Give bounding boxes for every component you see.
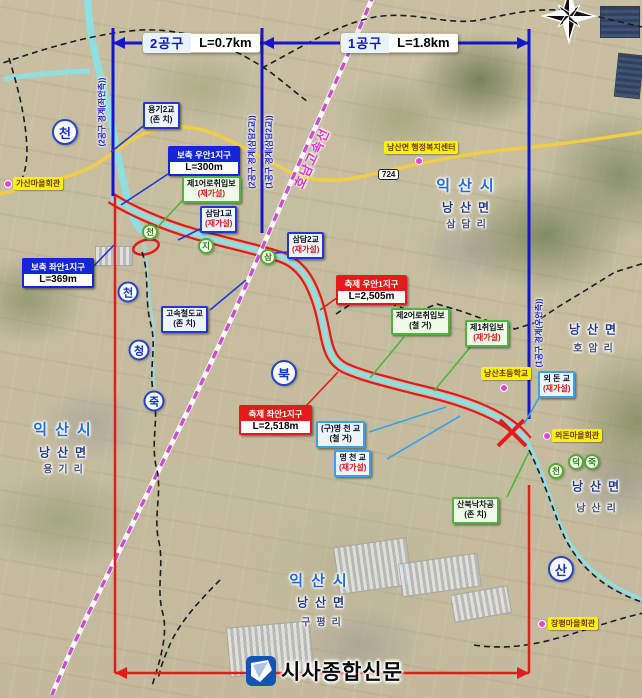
- structure-label-fishway1-weir: 제1어로취입보 (재가설): [182, 176, 241, 203]
- zone-title: 축제 좌안1지구: [241, 407, 310, 421]
- structure-note: (존 치): [457, 510, 494, 520]
- poi-label-gasan-hall: 가산마을회관: [13, 177, 63, 190]
- structure-note: (철 거): [396, 321, 445, 331]
- stream-marker-san: 산: [548, 556, 574, 582]
- poi-marker-dot: [415, 157, 423, 165]
- arrowhead-icon: [115, 667, 127, 679]
- boundary-dash: [529, 450, 642, 604]
- poi-label-oedon-hall: 외돈마을회관: [552, 429, 602, 442]
- stream-marker-g-sam: 삼: [260, 249, 276, 265]
- arrowhead-icon: [113, 37, 125, 49]
- poi-label-jangpyeong-hall: 장평마을회관: [548, 617, 598, 630]
- region-district-nangsan: 낭산면: [572, 478, 626, 495]
- project-location-map: 2공구L=0.7km 1공구L=1.8km (2공구 경계(좌안측)) (2공구…: [0, 0, 642, 698]
- zone-label-chukje-left: 축제 좌안1지구 L=2,518m: [239, 405, 312, 435]
- structure-label-oedon-bridge: 외 돈 교 (재가설): [538, 371, 575, 398]
- newspaper-logo: 시사종합신문: [246, 656, 403, 686]
- stream-marker-g-deok: 덕: [568, 454, 584, 470]
- structure-label-yonggi2-bridge: 용기2교 (존 치): [143, 102, 180, 129]
- region-city-samdam: 익산시: [436, 175, 501, 196]
- road-number-badge: 724: [378, 169, 399, 180]
- structure-note: (철 거): [321, 434, 360, 444]
- region-village-hoam: 호암리: [573, 340, 619, 355]
- structure-name: 명 천 교: [339, 453, 366, 463]
- structure-note: (재가설): [470, 333, 504, 343]
- section2-dimension-label: 2공구L=0.7km: [143, 33, 260, 53]
- leader-line: [434, 345, 472, 391]
- structure-label-samdam1-bridge: 삼담1교 (재가설): [200, 206, 237, 233]
- section1-length: L=1.8km: [389, 34, 457, 52]
- newspaper-logo-icon: [246, 656, 276, 686]
- section1-dimension-label: 1공구L=1.8km: [341, 33, 458, 53]
- leader-line: [370, 337, 404, 378]
- leader-line: [92, 245, 114, 268]
- poi-marker-dot: [543, 432, 551, 440]
- structure-label-sanbuk-drop: 산북낙차공 (존 치): [452, 497, 499, 524]
- poi-label-nangsan-school: 낭산초등학교: [481, 367, 531, 380]
- region-city-yonggi: 익산시: [33, 419, 98, 440]
- leader-line: [524, 396, 540, 424]
- stream-marker-cheong: 청: [129, 340, 150, 361]
- zone-title: 축제 우안1지구: [338, 277, 405, 291]
- structure-label-samdam2-bridge: 삼담2교 (재가설): [287, 232, 324, 259]
- stream-marker-juk: 죽: [144, 391, 165, 412]
- poi-marker-dot: [4, 180, 12, 188]
- structure-note: (재가설): [543, 384, 570, 394]
- structure-name: 고속철도교: [166, 309, 203, 319]
- structure-name: 제1취입보: [470, 323, 504, 333]
- stream-marker-buk: 북: [271, 360, 297, 386]
- region-district-yonggi: 낭산면: [39, 444, 93, 461]
- section2-length: L=0.7km: [191, 34, 259, 52]
- poi-label-nangsan-center: 낭산면 행정복지센터: [384, 141, 458, 154]
- zone-length: L=300m: [170, 162, 238, 174]
- structure-note: (존 치): [148, 115, 175, 125]
- leader-line: [306, 372, 338, 406]
- zone-label-bochuk-left: 보축 좌안1지구 L=369m: [22, 258, 94, 288]
- structure-note: (존 치): [166, 319, 203, 329]
- boundary-dash: [158, 580, 220, 680]
- region-district-hoam: 낭산면: [569, 321, 623, 338]
- arrowhead-icon: [517, 37, 529, 49]
- poi-marker-dot: [500, 384, 508, 392]
- region-city-gupyeong: 익산시: [289, 570, 354, 591]
- structure-note: (재가설): [292, 245, 319, 255]
- boundary-text-left: (2공구 경계(좌안측)): [97, 78, 108, 147]
- region-village-samdam: 삼담리: [446, 216, 492, 231]
- zone-title: 보축 우안1지구: [170, 148, 238, 162]
- zone-title: 보축 좌안1지구: [24, 260, 92, 274]
- zone-length: L=2,518m: [241, 421, 310, 433]
- newspaper-logo-text: 시사종합신문: [281, 656, 403, 686]
- stream-marker-cheon: 천: [52, 119, 78, 145]
- region-district-gupyeong: 낭산면: [297, 594, 351, 611]
- poi-marker-dot: [538, 620, 546, 628]
- compass-rose-icon: [543, 0, 595, 42]
- structure-name: 외 돈 교: [543, 374, 570, 384]
- structure-name: 삼담2교: [292, 235, 319, 245]
- structure-name: 제2어로취입보: [396, 311, 445, 321]
- region-district-samdam: 낭산면: [442, 199, 496, 216]
- structure-name: 용기2교: [148, 105, 175, 115]
- structure-name: 삼담1교: [205, 209, 232, 219]
- leader-line: [369, 407, 446, 432]
- zone-label-bochuk-right: 보축 우안1지구 L=300m: [168, 146, 240, 176]
- zone-length: L=369m: [24, 274, 92, 286]
- stream-marker-cheon2: 천: [118, 282, 139, 303]
- structure-label-hsr-bridge: 고속철도교 (존 치): [161, 306, 208, 333]
- section2-name: 2공구: [143, 33, 191, 53]
- boundary-text-mid-2: (2공구 경계(삼담2교)): [247, 115, 258, 188]
- stream-marker-g-cheon2: 천: [548, 463, 564, 479]
- structure-name: (구)명 천 교: [321, 424, 360, 434]
- structure-name: 산북낙차공: [457, 500, 494, 510]
- structure-note: (재가설): [187, 189, 236, 199]
- structure-name: 제1어로취입보: [187, 179, 236, 189]
- structure-label-myeongcheon-bridge: 명 천 교 (재가설): [334, 450, 371, 477]
- structure-label-fishway2-weir: 제2어로취입보 (철 거): [391, 308, 450, 335]
- structure-label-old-myeongcheon-bridge: (구)명 천 교 (철 거): [316, 421, 365, 448]
- structure-note: (재가설): [205, 219, 232, 229]
- zone-label-chukje-right: 축제 우안1지구 L=2,505m: [336, 275, 407, 305]
- region-village-yonggi: 용기리: [43, 461, 89, 476]
- structure-label-intake1-weir: 제1취입보 (재가설): [465, 320, 509, 347]
- region-village-nangsan: 낭산리: [576, 500, 622, 515]
- stream-marker-g-cheon: 천: [142, 224, 158, 240]
- leader-line: [507, 452, 529, 497]
- region-village-gupyeong: 구평리: [301, 614, 347, 629]
- weir-loop-mark: [132, 237, 161, 257]
- arrowhead-icon: [517, 667, 529, 679]
- zone-length: L=2,505m: [338, 291, 405, 303]
- section1-name: 1공구: [341, 33, 389, 53]
- arrowhead-icon: [262, 37, 274, 49]
- boundary-text-right: (1공구 경계(우안측)): [534, 299, 545, 368]
- structure-note: (재가설): [339, 463, 366, 473]
- river-branch: [4, 71, 90, 79]
- stream-marker-g-juk: 죽: [584, 454, 600, 470]
- boundary-text-mid-1: (1공구 경계(삼담2교)): [264, 115, 275, 188]
- stream-marker-g-ji: 지: [198, 238, 214, 254]
